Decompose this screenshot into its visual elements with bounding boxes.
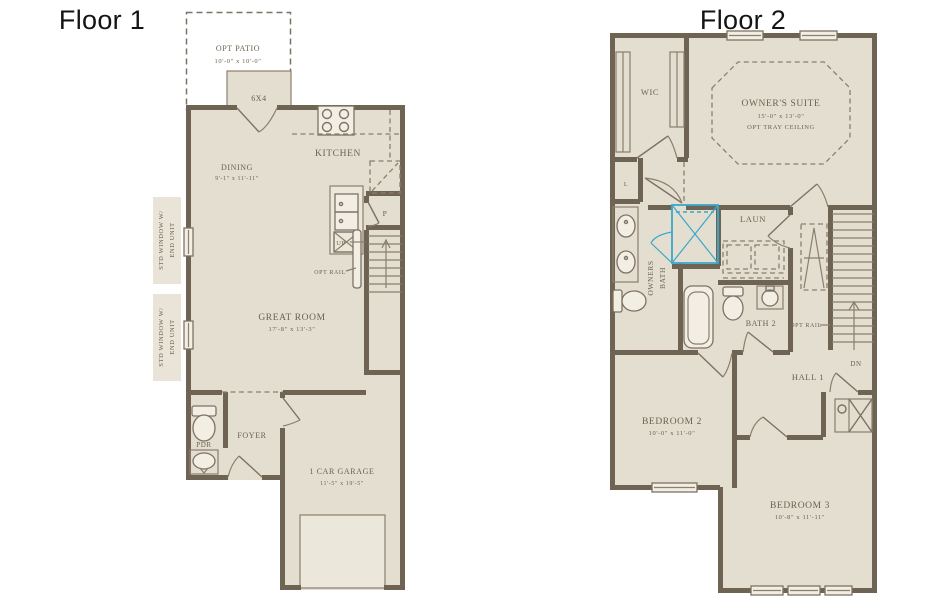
floor2-plan: Floor 2 WIC <box>610 5 877 595</box>
dining-dims: 9'-1" x 11'-11" <box>215 176 259 182</box>
great-room-label: GREAT ROOM <box>258 313 325 323</box>
garage-dims: 11'-5" x 19'-5" <box>320 481 364 487</box>
bedroom3-label: BEDROOM 3 <box>770 501 830 511</box>
floorplan-drawing: Floor 1 OPT PATIO 10'-0" x 10'-0" 6X4 PA… <box>0 0 929 600</box>
opt-rail-label-f1: OPT RAIL <box>314 270 346 276</box>
pantry-label: P <box>383 209 388 218</box>
opt-rail-label-f2: OPT RAIL <box>790 323 822 329</box>
pdr-toilet-icon <box>192 406 216 441</box>
wic-label: WIC <box>641 87 659 97</box>
owners-toilet-icon <box>613 290 646 312</box>
stairs-dn-label: DN <box>850 360 861 368</box>
hall1-label: HALL 1 <box>792 372 824 382</box>
bedroom2-label: BEDROOM 2 <box>642 417 702 427</box>
great-room-dims: 17'-8" x 13'-3" <box>269 326 316 333</box>
floorplan-page: Floor 1 OPT PATIO 10'-0" x 10'-0" 6X4 PA… <box>0 0 929 600</box>
tub-icon <box>684 286 713 348</box>
bedroom3-dims: 10'-8" x 11'-11" <box>775 514 825 521</box>
laundry-label: LAUN <box>740 214 766 224</box>
owners-bath-label-line2: BATH <box>658 267 667 289</box>
owners-suite-note: OPT TRAY CEILING <box>747 124 815 131</box>
pad-label-line1: 6X4 <box>251 94 267 103</box>
window-note-line2: END UNIT <box>169 319 176 354</box>
bath2-toilet-icon <box>723 287 743 320</box>
std-window-note-upper: STD WINDOW W/ END UNIT <box>153 197 181 284</box>
floor1-plan: Floor 1 OPT PATIO 10'-0" x 10'-0" 6X4 PA… <box>59 5 405 590</box>
garage-label: 1 CAR GARAGE <box>310 467 375 476</box>
linen-label: L <box>624 182 628 188</box>
window-note-line1: STD WINDOW W/ <box>158 307 165 366</box>
opt-patio-dims: 10'-0" x 10'-0" <box>215 58 262 65</box>
owners-suite-dims: 15'-0" x 13'-0" <box>758 113 805 120</box>
bedroom2-dims: 10'-0" x 11'-0" <box>649 430 696 437</box>
window-note-line2: END UNIT <box>169 222 176 257</box>
floor1-title: Floor 1 <box>59 5 145 35</box>
stove-icon <box>318 106 354 135</box>
dining-label: DINING <box>221 163 253 172</box>
kitchen-label: KITCHEN <box>315 149 361 159</box>
pdr-label: PDR <box>196 441 211 449</box>
owners-bath-label-line1: OWNERS <box>646 260 655 295</box>
bath2-label: BATH 2 <box>746 319 777 328</box>
opt-patio-label: OPT PATIO <box>216 44 260 53</box>
stair-rail-icon <box>353 230 361 288</box>
std-window-note-lower: STD WINDOW W/ END UNIT <box>153 294 181 381</box>
window-note-line1: STD WINDOW W/ <box>158 210 165 269</box>
garage-door-icon <box>300 515 385 588</box>
foyer-label: FOYER <box>237 431 266 440</box>
floor2-footprint <box>610 33 877 593</box>
owners-suite-label: OWNER'S SUITE <box>742 99 821 109</box>
stairs-up-label: UP <box>336 240 346 247</box>
